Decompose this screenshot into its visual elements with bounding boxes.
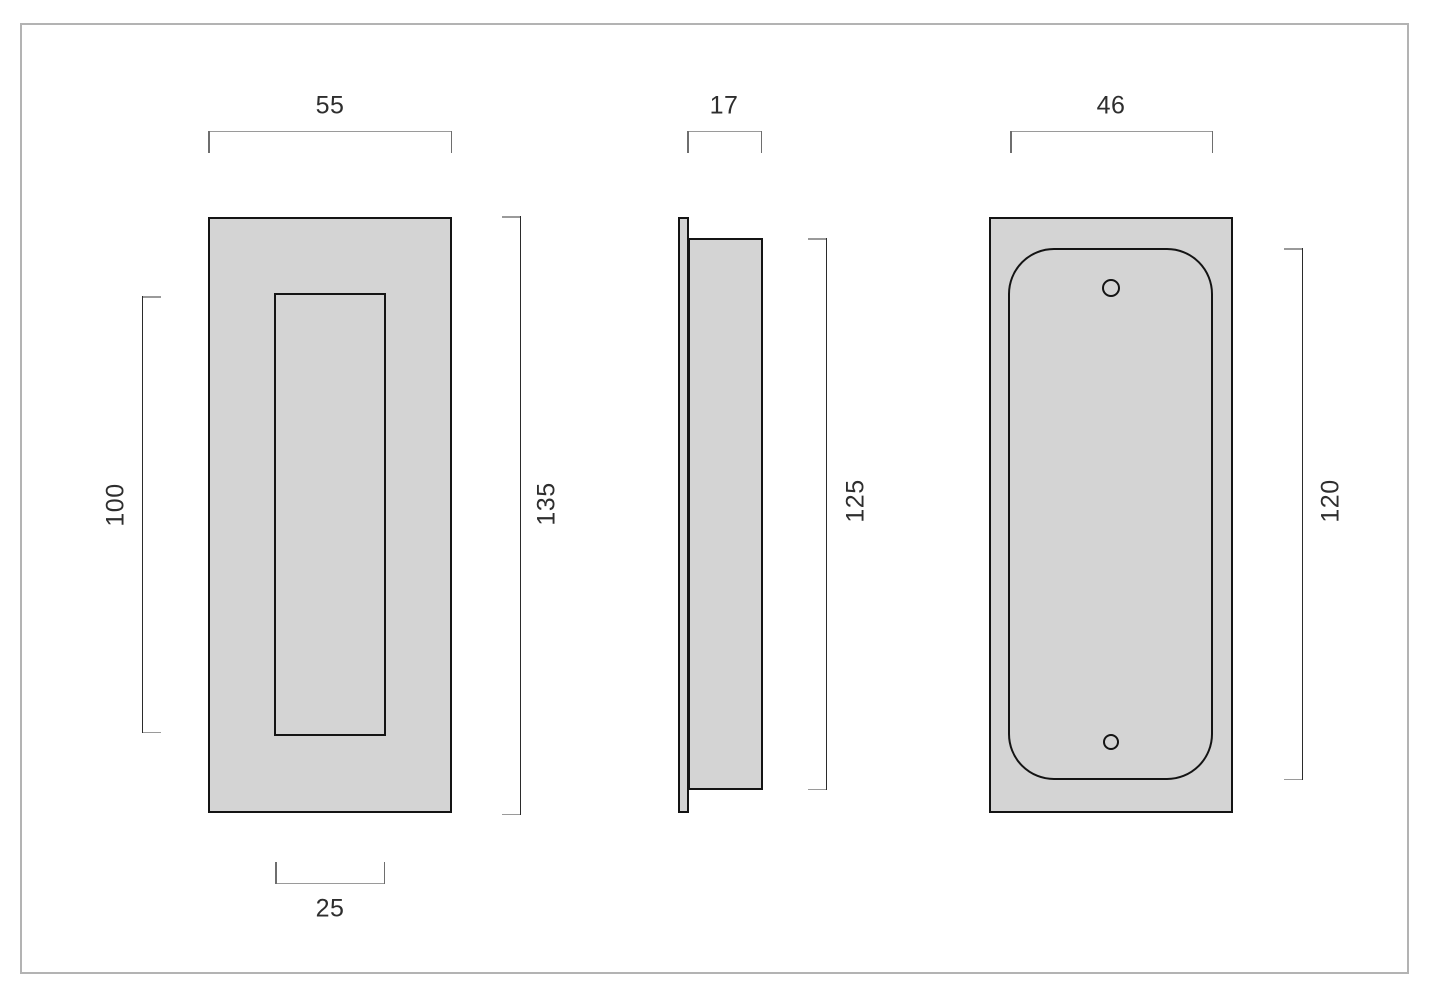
dim-back-recess-height-bracket bbox=[1285, 248, 1303, 780]
front-recess-outline bbox=[274, 293, 386, 736]
dim-front-height-label: 135 bbox=[533, 482, 562, 525]
dim-front-recess-width-label: 25 bbox=[316, 895, 345, 924]
back-recess-outline bbox=[1008, 248, 1213, 780]
dim-front-width-bracket bbox=[208, 131, 452, 153]
drawing-sheet: 55 135 100 25 17 125 46 120 bbox=[0, 0, 1440, 1000]
dim-front-recess-height-bracket bbox=[142, 296, 160, 733]
dim-side-body-height-bracket bbox=[809, 238, 827, 790]
dim-front-recess-height-label: 100 bbox=[102, 483, 131, 526]
dim-front-height-bracket bbox=[503, 216, 521, 815]
side-body-outline bbox=[688, 238, 763, 790]
dim-front-width-label: 55 bbox=[316, 92, 345, 121]
dim-side-depth-label: 17 bbox=[710, 92, 739, 121]
dim-back-recess-height-label: 120 bbox=[1317, 479, 1346, 522]
dim-side-body-height-label: 125 bbox=[842, 479, 871, 522]
dim-back-recess-width-bracket bbox=[1010, 131, 1213, 153]
dim-side-depth-bracket bbox=[687, 131, 762, 153]
dim-back-recess-width-label: 46 bbox=[1097, 92, 1126, 121]
back-screw-hole-bottom bbox=[1103, 734, 1119, 750]
dim-front-recess-width-bracket bbox=[275, 862, 385, 884]
back-screw-hole-top bbox=[1102, 279, 1120, 297]
